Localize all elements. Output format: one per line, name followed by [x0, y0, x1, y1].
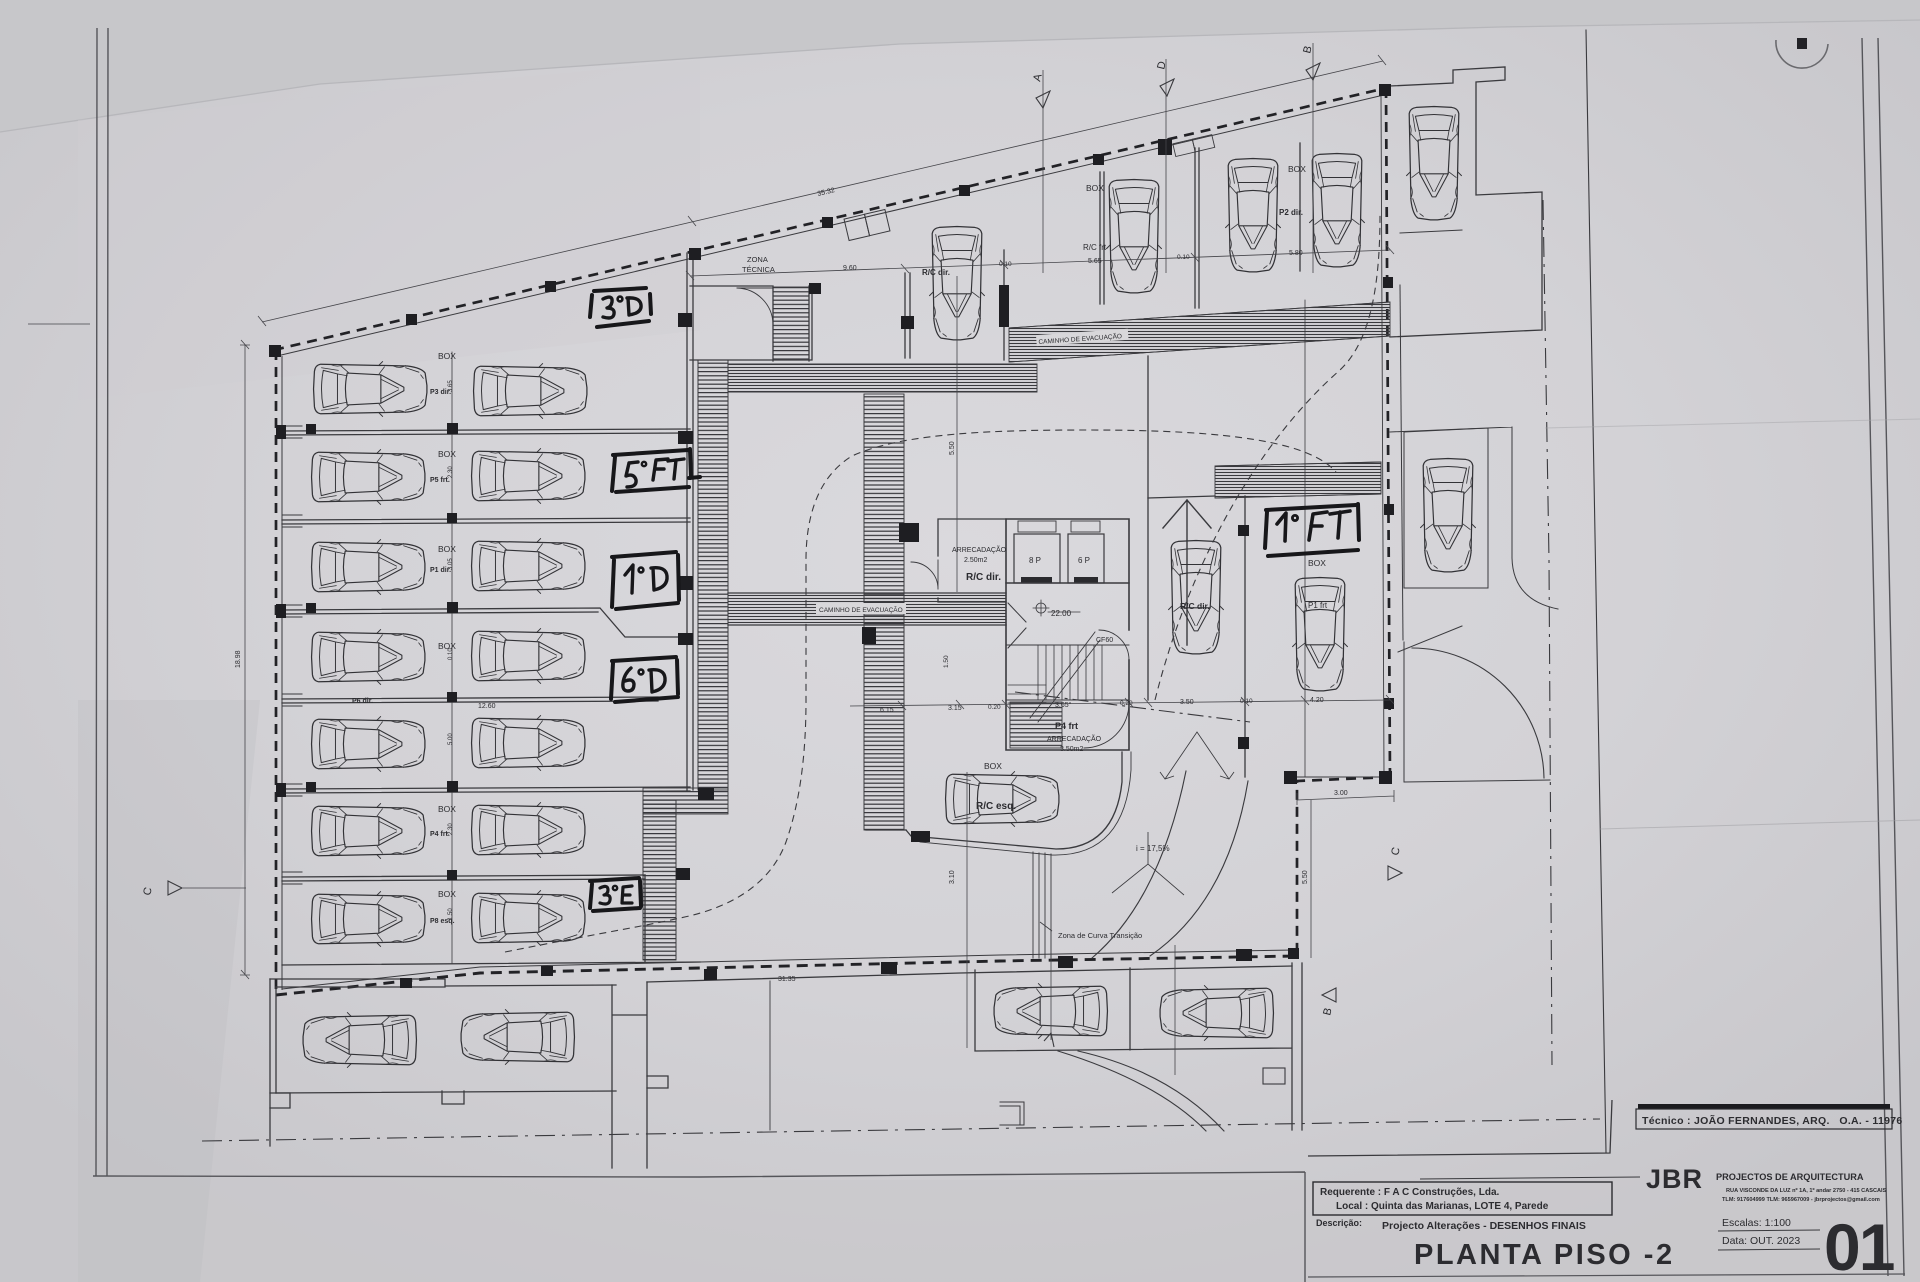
- svg-text:4.20: 4.20: [1310, 697, 1324, 704]
- svg-text:R/C dir.: R/C dir.: [966, 572, 1001, 583]
- svg-text:3.50m2: 3.50m2: [1060, 746, 1083, 753]
- svg-text:5.50: 5.50: [1302, 870, 1309, 884]
- svg-text:8 P: 8 P: [1029, 556, 1041, 565]
- svg-text:0.10: 0.10: [1240, 698, 1253, 705]
- svg-text:2.30: 2.30: [448, 466, 454, 478]
- svg-text:Técnico : JOÃO FERNANDES, ARQ.: Técnico : JOÃO FERNANDES, ARQ. O.A. - 11…: [1642, 1114, 1903, 1127]
- svg-text:Local : Quinta das Marianas, L: Local : Quinta das Marianas, LOTE 4, Par…: [1336, 1201, 1549, 1212]
- svg-text:3.50: 3.50: [1180, 699, 1194, 706]
- svg-text:BOX: BOX: [1288, 164, 1306, 174]
- svg-text:3.65°: 3.65°: [1055, 701, 1072, 709]
- svg-text:3.65: 3.65: [448, 380, 454, 392]
- svg-text:CAMINHO DE EVACUAÇÃO: CAMINHO DE EVACUAÇÃO: [819, 605, 903, 614]
- svg-text:P1 frt: P1 frt: [1308, 601, 1328, 610]
- svg-text:3.00: 3.00: [1334, 790, 1348, 797]
- svg-text:22.00: 22.00: [1051, 609, 1072, 618]
- svg-text:1.50: 1.50: [448, 908, 454, 920]
- svg-text:01: 01: [1824, 1210, 1894, 1282]
- svg-text:0.10: 0.10: [999, 261, 1012, 268]
- svg-text:TÉCNICA: TÉCNICA: [742, 265, 775, 274]
- svg-text:18.98: 18.98: [235, 650, 242, 668]
- svg-text:R/C esq.: R/C esq.: [976, 801, 1016, 812]
- svg-text:CF60: CF60: [1096, 637, 1113, 644]
- svg-text:i = 17,5%: i = 17,5%: [1136, 844, 1170, 853]
- svg-text:TLM: 917604999 TLM: 965967009: TLM: 917604999 TLM: 965967009 - jbrproje…: [1722, 1197, 1880, 1203]
- svg-text:R/C frt: R/C frt: [1083, 243, 1107, 252]
- svg-text:3.05: 3.05: [448, 558, 454, 570]
- svg-text:9.60: 9.60: [843, 265, 857, 272]
- svg-text:BOX: BOX: [438, 804, 456, 814]
- svg-text:ARRECADAÇÃO: ARRECADAÇÃO: [1047, 734, 1102, 743]
- svg-text:PROJECTOS DE ARQUITECTURA: PROJECTOS DE ARQUITECTURA: [1716, 1172, 1864, 1182]
- svg-text:5.50: 5.50: [949, 441, 956, 455]
- svg-text:PLANTA PISO -2: PLANTA PISO -2: [1414, 1239, 1675, 1271]
- svg-text:Zona de Curva Transição: Zona de Curva Transição: [1058, 931, 1142, 940]
- svg-text:6.15: 6.15: [880, 707, 894, 714]
- svg-text:Requerente : F A C Construçõe: Requerente : F A C Construções, Lda.: [1320, 1187, 1500, 1198]
- svg-text:Descrição:: Descrição:: [1316, 1218, 1362, 1228]
- svg-text:ARRECADAÇÃO: ARRECADAÇÃO: [952, 545, 1007, 554]
- svg-text:ZONA: ZONA: [747, 255, 768, 264]
- svg-text:3.15: 3.15: [948, 705, 962, 712]
- svg-text:BOX: BOX: [438, 889, 456, 899]
- svg-text:P4 frt: P4 frt: [1055, 721, 1078, 731]
- svg-text:6 P: 6 P: [1078, 556, 1090, 565]
- svg-text:BOX: BOX: [438, 449, 456, 459]
- svg-text:BOX: BOX: [1086, 183, 1104, 193]
- svg-text:0.20: 0.20: [1120, 700, 1133, 707]
- svg-text:R/C dir.: R/C dir.: [1180, 601, 1210, 611]
- svg-text:R/C dir.: R/C dir.: [922, 268, 950, 277]
- svg-text:0.20: 0.20: [988, 704, 1001, 711]
- svg-text:P4 frt.: P4 frt.: [430, 831, 450, 838]
- svg-text:Escalas: 1:100: Escalas: 1:100: [1722, 1217, 1791, 1229]
- svg-text:P6 dir.: P6 dir.: [352, 698, 373, 705]
- svg-text:Data: OUT. 2023: Data: OUT. 2023: [1722, 1235, 1800, 1247]
- svg-text:JBR: JBR: [1646, 1164, 1703, 1194]
- svg-text:P2 dir.: P2 dir.: [1279, 208, 1303, 217]
- svg-text:BOX: BOX: [1308, 558, 1326, 568]
- svg-text:5.00: 5.00: [448, 733, 454, 745]
- svg-text:1.50: 1.50: [943, 655, 950, 668]
- svg-text:2.30: 2.30: [448, 823, 454, 835]
- svg-text:5.80: 5.80: [1289, 250, 1303, 257]
- svg-text:BOX: BOX: [438, 544, 456, 554]
- svg-text:2.50m2: 2.50m2: [964, 557, 987, 564]
- svg-text:BOX: BOX: [984, 761, 1002, 771]
- svg-text:5.65: 5.65: [1088, 258, 1102, 265]
- svg-text:RUA VISCONDE DA LUZ nº 1A, 1º: RUA VISCONDE DA LUZ nº 1A, 1º andar 2750…: [1726, 1188, 1887, 1194]
- svg-text:Projecto Alterações - DESENHOS: Projecto Alterações - DESENHOS FINAIS: [1382, 1220, 1586, 1232]
- svg-text:3.10: 3.10: [949, 870, 956, 884]
- svg-text:0.10: 0.10: [1177, 254, 1190, 261]
- svg-text:0.10: 0.10: [448, 648, 454, 660]
- svg-text:12.60: 12.60: [478, 703, 496, 710]
- svg-text:BOX: BOX: [438, 351, 456, 361]
- svg-text:P5 frt.: P5 frt.: [430, 477, 450, 484]
- svg-text:31.35: 31.35: [778, 976, 796, 983]
